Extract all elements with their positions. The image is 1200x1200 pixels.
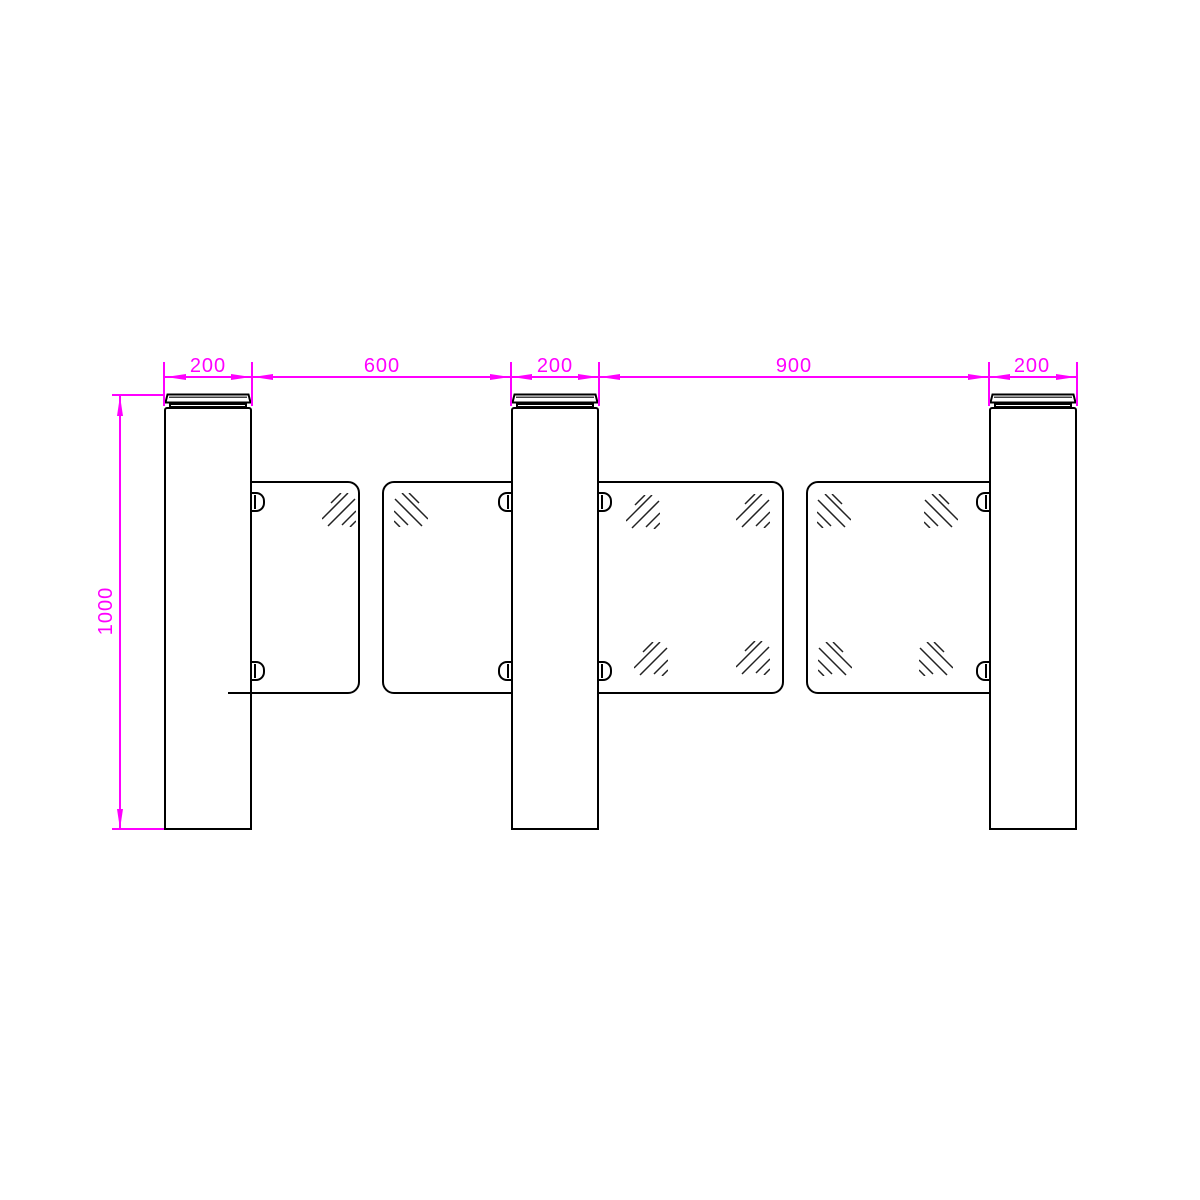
glass-reflection-hatch-icon [394, 493, 428, 527]
dimension-label-pillar-right: 200 [1014, 356, 1050, 376]
glass-reflection-hatch-icon [817, 494, 851, 528]
dimension-arrow-left-icon [253, 374, 273, 380]
dimension-arrow-up-icon [117, 396, 123, 416]
dimension-arrow-right-icon [490, 374, 510, 380]
dimension-extension-line [163, 362, 165, 406]
dimension-arrow-right-icon [231, 374, 251, 380]
glass-clamp [976, 492, 989, 512]
glass-reflection-hatch-icon [626, 495, 660, 529]
glass-reflection-hatch-icon [924, 494, 958, 528]
dimension-extension-line [598, 362, 600, 406]
pillar-cap-lip [169, 403, 247, 408]
glass-reflection-hatch-icon [322, 493, 356, 527]
pillar-cabinet-middle [511, 407, 599, 830]
pillar-cap-lip [994, 403, 1072, 408]
dimension-extension-line [988, 362, 990, 406]
dimension-arrow-right-icon [968, 374, 988, 380]
dimension-arrow-right-icon [1056, 374, 1076, 380]
dimension-label-lane-2: 900 [776, 356, 812, 376]
dimension-arrow-left-icon [990, 374, 1010, 380]
dimension-arrow-left-icon [600, 374, 620, 380]
pillar-cabinet-left [164, 407, 252, 830]
glass-reflection-hatch-icon [919, 642, 953, 676]
dimension-arrow-left-icon [166, 374, 186, 380]
pillar-cabinet-right [989, 407, 1077, 830]
dimension-arrow-down-icon [117, 809, 123, 829]
glass-panel-edge-line [228, 692, 254, 694]
dimension-line-horizontal [164, 376, 1077, 378]
dimension-label-pillar-middle: 200 [537, 356, 573, 376]
glass-clamp [498, 492, 511, 512]
dimension-extension-line [510, 362, 512, 406]
dimension-arrow-left-icon [512, 374, 532, 380]
glass-reflection-hatch-icon [736, 494, 770, 528]
dimension-extension-line [251, 362, 253, 406]
dimension-arrow-right-icon [578, 374, 598, 380]
dimension-label-height: 1000 [96, 587, 116, 636]
glass-clamp [498, 661, 511, 681]
pillar-cap-lip [516, 403, 594, 408]
dimension-line-vertical [119, 395, 121, 830]
glass-reflection-hatch-icon [818, 642, 852, 676]
glass-reflection-hatch-icon [736, 641, 770, 675]
glass-clamp [976, 661, 989, 681]
turnstile-dimension-drawing: 200 600 200 900 200 1000 [0, 0, 1200, 1200]
dimension-label-pillar-left: 200 [190, 356, 226, 376]
glass-reflection-hatch-icon [634, 642, 668, 676]
dimension-extension-line [1076, 362, 1078, 406]
dimension-label-lane-1: 600 [364, 356, 400, 376]
